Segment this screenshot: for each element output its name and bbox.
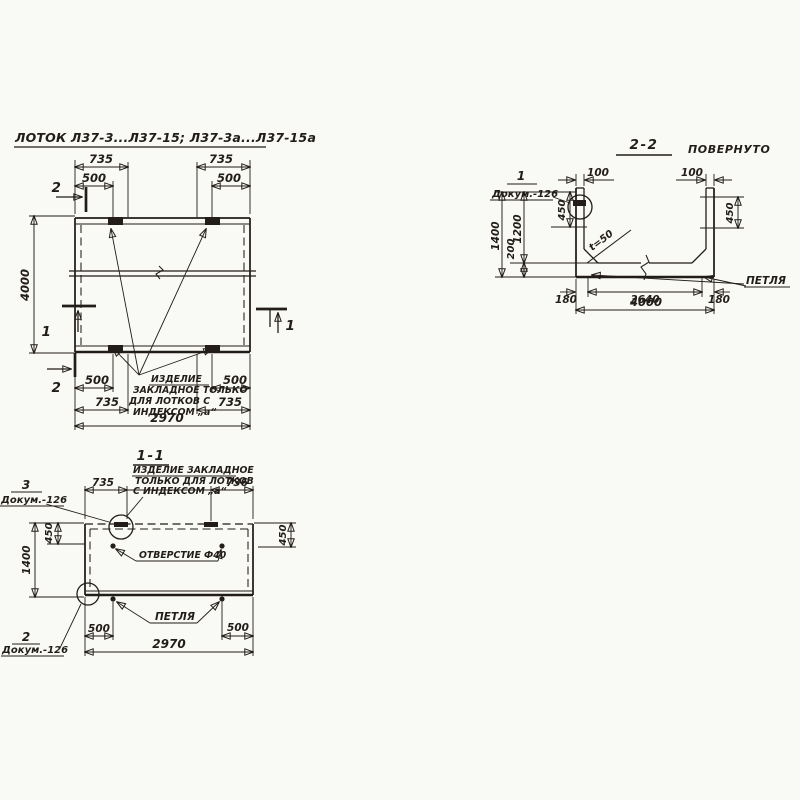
dim-735-bottom-right: 735: [218, 395, 242, 409]
drawing-sheet: ЛОТОК Л37-3...Л37-15; Л37-3а...Л37-15а: [0, 0, 800, 800]
plan-title: ЛОТОК Л37-3...Л37-15; Л37-3а...Л37-15а: [14, 130, 316, 145]
loop-mark: [219, 596, 224, 601]
hole-mark: [219, 543, 224, 548]
note-line3: С ИНДЕКСОМ „а“: [133, 486, 227, 497]
section-2-2-title: 2-2: [630, 137, 659, 153]
plan-note-line1: ИЗДЕЛИЕ: [151, 374, 203, 385]
plan-note-line3: ДЛЯ ЛОТКОВ С: [128, 396, 210, 407]
section-2-marker-bottom: 2: [52, 380, 63, 396]
engineering-drawing: ЛОТОК Л37-3...Л37-15; Л37-3а...Л37-15а: [0, 0, 800, 800]
embedded-plate: [108, 217, 123, 225]
hole-callout: ОТВЕРСТИЕ Ф40: [110, 543, 226, 561]
loop-label-text: ПЕТЛЯ: [746, 275, 786, 287]
dim-180-right: 180: [708, 294, 730, 306]
section-2-2-subtitle: ПОВЕРНУТО: [688, 143, 770, 156]
dim-200: 200: [506, 239, 517, 260]
dim-500-bottom-left: 500: [85, 373, 109, 387]
dim-2970-s11: 2970: [152, 637, 185, 651]
embedded-plate: [204, 522, 218, 527]
dim-735-top-left: 735: [89, 152, 113, 166]
section-1-1-view: 1-1 ИЗДЕЛИЕ ЗАКЛАДНОЕ ТОЛЬКО ДЛЯ ЛОТКОВ …: [0, 448, 296, 656]
section-1-1-note: ИЗДЕЛИЕ ЗАКЛАДНОЕ ТОЛЬКО ДЛЯ ЛОТКОВ С ИН…: [127, 465, 254, 516]
loop-label-text: ПЕТЛЯ: [155, 611, 195, 623]
plan-outline: [69, 217, 256, 353]
dim-100-right: 100: [681, 167, 703, 179]
callout-1-number: 1: [517, 169, 525, 183]
embedded-plate: [114, 522, 128, 527]
dim-735-bottom-left: 735: [95, 395, 119, 409]
dim-735-top-right: 735: [209, 152, 233, 166]
chamfer-note: t=50: [587, 228, 631, 263]
dim-100-left: 100: [587, 167, 609, 179]
dim-500-left-s11: 500: [88, 623, 110, 635]
section-1-marker-left: 1: [42, 324, 53, 340]
callout-2-number: 2: [22, 630, 30, 644]
section-1-marker-right: 1: [286, 318, 297, 334]
embedded-plate: [205, 217, 220, 225]
dim-736: 736: [226, 477, 248, 489]
dim-450-right-s11: 450: [278, 525, 289, 547]
note-line1: ИЗДЕЛИЕ ЗАКЛАДНОЕ: [133, 465, 254, 476]
loop-mark: [110, 596, 115, 601]
plan-section-markers: 2 2 1 1: [42, 180, 297, 396]
callout-3-doc-label: Докум.-126: [0, 495, 67, 506]
dim-500-top-left: 500: [82, 171, 106, 185]
plan-note-line4: ИНДЕКСОМ „а“: [133, 407, 217, 418]
section-1-1-title: 1-1: [137, 448, 166, 464]
plan-view: ЛОТОК Л37-3...Л37-15; Л37-3а...Л37-15а: [14, 130, 316, 430]
section-2-marker-top: 2: [52, 180, 63, 196]
dim-1400-s11: 1400: [21, 545, 33, 574]
chamfer-note-text: t=50: [587, 228, 615, 253]
callout-3-number: 3: [22, 478, 30, 492]
dim-450-left: 450: [557, 200, 568, 222]
embedded-plate: [573, 200, 586, 206]
embedded-plate: [108, 345, 123, 353]
section-2-2-view: 2-2 ПОВЕРНУТО 1 Докум.-126: [490, 137, 790, 314]
dim-735: 735: [92, 477, 114, 489]
dim-500-right-s11: 500: [227, 622, 249, 634]
hole-label: ОТВЕРСТИЕ Ф40: [139, 550, 227, 561]
channel-cross-section: [573, 188, 714, 280]
embedded-plate: [205, 345, 220, 353]
dim-500-top-right: 500: [217, 171, 241, 185]
loop-label-1-1: ПЕТЛЯ: [110, 596, 224, 623]
dim-450-left-s11: 450: [44, 523, 55, 545]
plan-note-line2: ЗАКЛАДНОЕ ТОЛЬКО: [133, 385, 248, 396]
callout-2-doc-label: Докум.-126: [1, 645, 68, 656]
dim-180-left: 180: [555, 294, 577, 306]
dim-4000-section: 4000: [629, 295, 662, 309]
callout-1-doc-label: Докум.-126: [491, 189, 558, 200]
callout-2: 2 Докум.-126: [1, 604, 81, 656]
break-symbol: [156, 266, 163, 279]
dim-450-right: 450: [725, 203, 736, 225]
detail-callout-circle: [568, 195, 592, 219]
plan-note: ИЗДЕЛИЕ ЗАКЛАДНОЕ ТОЛЬКО ДЛЯ ЛОТКОВ С ИН…: [111, 229, 248, 418]
dim-1400: 1400: [490, 221, 502, 250]
hole-mark: [110, 543, 115, 548]
dim-4000-left: 4000: [18, 269, 32, 302]
